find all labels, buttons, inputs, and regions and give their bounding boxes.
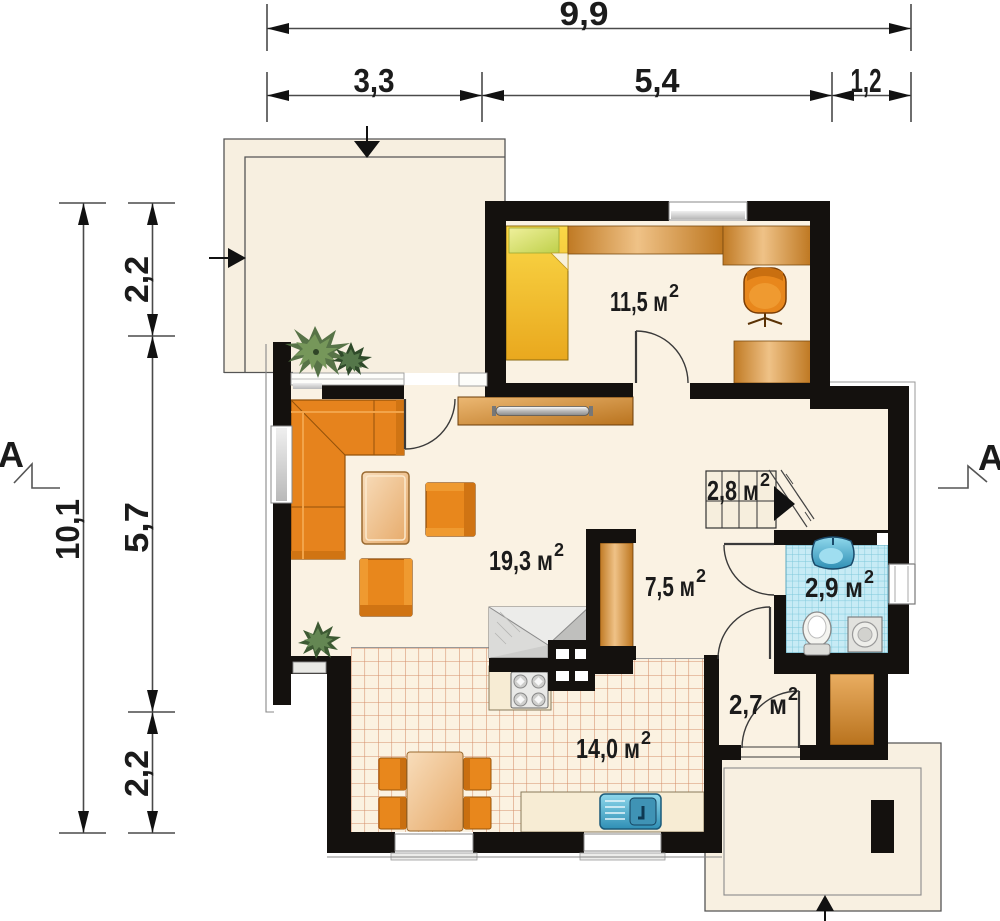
svg-text:2,7 м: 2,7 м: [729, 689, 787, 720]
svg-text:2,9 м: 2,9 м: [805, 572, 863, 603]
svg-text:2: 2: [696, 566, 706, 586]
svg-text:1,2: 1,2: [851, 62, 882, 99]
svg-text:14,0 м: 14,0 м: [576, 733, 640, 764]
svg-text:A: A: [978, 437, 1000, 478]
svg-text:11,5 м: 11,5 м: [610, 286, 668, 317]
svg-text:2: 2: [641, 728, 651, 748]
svg-text:2: 2: [554, 540, 564, 560]
svg-text:5,7: 5,7: [118, 502, 155, 553]
svg-text:19,3 м: 19,3 м: [489, 545, 553, 576]
svg-text:5,4: 5,4: [635, 62, 681, 99]
svg-text:2: 2: [788, 684, 798, 704]
svg-text:A: A: [0, 434, 24, 475]
svg-text:3,3: 3,3: [354, 62, 395, 99]
svg-text:2: 2: [669, 281, 679, 301]
svg-text:2: 2: [760, 470, 770, 490]
svg-text:9,9: 9,9: [560, 0, 609, 32]
svg-text:2,8 м: 2,8 м: [707, 475, 759, 506]
svg-text:2,2: 2,2: [118, 750, 155, 797]
svg-text:7,5 м: 7,5 м: [645, 571, 695, 602]
svg-text:2: 2: [864, 567, 874, 587]
svg-text:10,1: 10,1: [49, 499, 86, 560]
svg-text:2,2: 2,2: [118, 256, 155, 303]
